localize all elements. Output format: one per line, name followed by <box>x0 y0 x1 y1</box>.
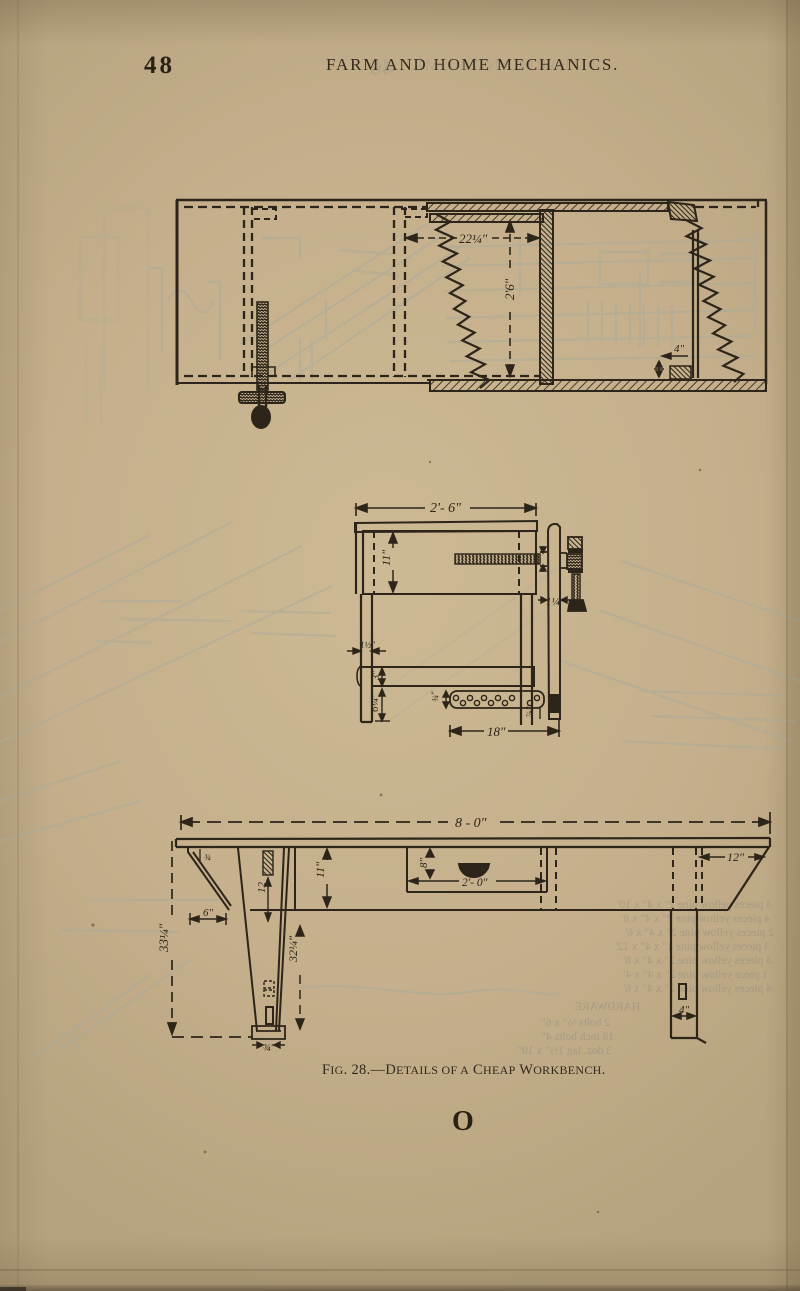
svg-text:4": 4" <box>674 343 685 355</box>
svg-text:11": 11" <box>379 549 393 566</box>
svg-text:HARDWARE: HARDWARE <box>575 1001 640 1013</box>
svg-text:2 pieces yellow pine 2" x 4" x: 2 pieces yellow pine 2" x 4" x 6' <box>625 927 774 939</box>
svg-text:8 - 0": 8 - 0" <box>455 816 487 831</box>
svg-text:¾": ¾" <box>263 1043 276 1054</box>
svg-text:3 pieces yellow pine 1" x 4" x: 3 pieces yellow pine 1" x 4" x 12' <box>615 941 770 953</box>
svg-text:22¼": 22¼" <box>459 231 488 246</box>
svg-text:12: 12 <box>256 882 268 894</box>
svg-text:1 piece yellow pine 2" x 4" x: 1 piece yellow pine 2" x 4" x 4' <box>624 969 768 981</box>
svg-text:11": 11" <box>313 861 327 878</box>
svg-text:1¼: 1¼ <box>546 596 560 608</box>
svg-text:⅞": ⅞" <box>525 706 535 717</box>
svg-text:18 inch bolts 4": 18 inch bolts 4" <box>541 1031 614 1043</box>
svg-text:4": 4" <box>679 1004 690 1016</box>
svg-text:2'- 0": 2'- 0" <box>462 877 488 889</box>
svg-text:¾": ¾" <box>430 691 440 702</box>
svg-text:18": 18" <box>487 724 506 739</box>
svg-text:33¼": 33¼" <box>156 923 171 953</box>
svg-text:1½": 1½" <box>360 640 375 650</box>
svg-text:4 pieces yellow pine 2" x 4" x: 4 pieces yellow pine 2" x 4" x 8' <box>621 913 770 925</box>
svg-text:2'6": 2'6" <box>502 278 517 300</box>
svg-text:12": 12" <box>727 850 745 864</box>
svg-text:6¼": 6¼" <box>369 693 381 712</box>
svg-text:2'- 6": 2'- 6" <box>430 501 461 516</box>
svg-text:3": 3" <box>371 670 382 681</box>
svg-text:6": 6" <box>203 907 214 919</box>
svg-text:3 doz. lag 1½" x 10": 3 doz. lag 1½" x 10" <box>517 1045 612 1057</box>
svg-text:8": 8" <box>418 858 430 869</box>
svg-text:¾: ¾ <box>204 852 211 862</box>
svg-text:2 bolts ½" x 6": 2 bolts ½" x 6" <box>541 1017 610 1029</box>
svg-text:32¼": 32¼" <box>286 935 300 963</box>
